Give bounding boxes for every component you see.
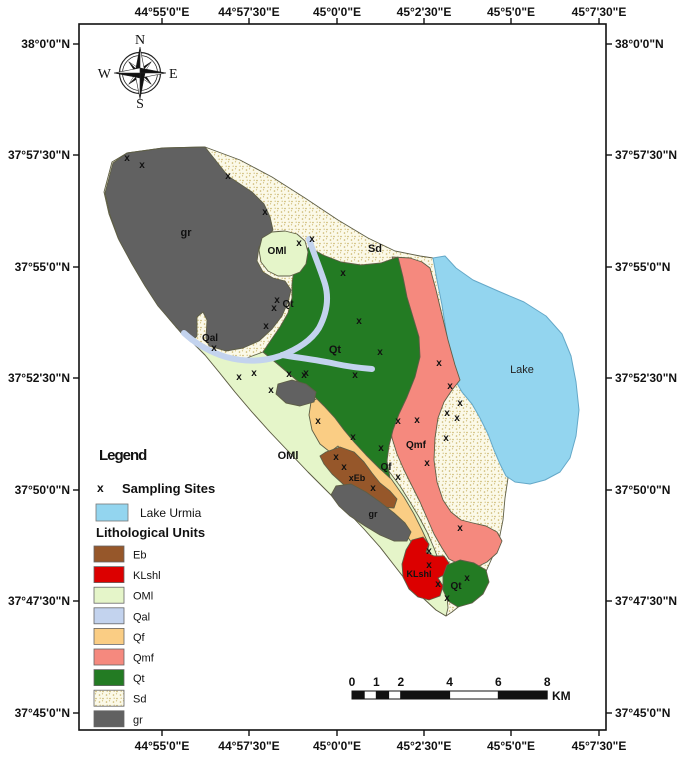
sampling-site-x: x	[225, 171, 231, 182]
scale-bar-segments	[352, 691, 547, 699]
lon-label-top: 44°55'0"E	[135, 5, 190, 19]
legend-label-gr: gr	[133, 714, 143, 726]
legend-sampling-label: Sampling Sites	[122, 481, 215, 496]
sampling-site-x: x	[395, 472, 401, 483]
lat-label-right: 37°57'30"N	[615, 148, 677, 162]
map-label-qt: Qt	[450, 581, 462, 592]
sampling-site-x: x	[286, 369, 292, 380]
legend-label-Qal: Qal	[133, 611, 150, 623]
lat-label-right: 37°52'30"N	[615, 371, 677, 385]
scale-bar-segment	[352, 691, 364, 699]
map-label-qt: Qt	[329, 344, 342, 356]
map-label-gr: gr	[369, 509, 378, 519]
lon-label-bottom: 45°5'0"E	[487, 739, 535, 753]
sampling-site-x: x	[435, 579, 441, 590]
legend-swatch-KLshl	[94, 567, 124, 583]
scale-bar-unit: KM	[552, 689, 571, 703]
sampling-site-x: x	[124, 153, 130, 164]
legend-label-Qf: Qf	[133, 632, 146, 644]
compass-e-label: E	[169, 67, 178, 82]
lon-label-top: 45°0'0"E	[313, 5, 361, 19]
sampling-site-x: x	[341, 462, 347, 473]
legend-swatch-Qt	[94, 670, 124, 686]
map-label-qf: Qf	[380, 462, 392, 473]
lat-label-left: 37°50'0"N	[15, 483, 70, 497]
map-label-oml: OMl	[268, 246, 287, 257]
scale-bar-segment	[401, 691, 450, 699]
sampling-site-x: x	[350, 432, 356, 443]
sampling-site-x: x	[251, 368, 257, 379]
scale-bar-number: 0	[349, 675, 356, 689]
geological-map-svg: grOMlSdQtQalQtOMlQmfQfxEbgrKLshlQtLake x…	[0, 0, 685, 756]
legend-label-Qmf: Qmf	[133, 653, 155, 665]
legend-label-Qt: Qt	[133, 673, 145, 685]
legend-swatch-gr	[94, 711, 124, 727]
legend-swatch-Qmf	[94, 649, 124, 665]
lon-label-top: 45°5'0"E	[487, 5, 535, 19]
legend-label-Sd: Sd	[133, 694, 146, 706]
sampling-site-x: x	[303, 368, 309, 379]
legend-swatch-OMl	[94, 587, 124, 603]
lon-label-bottom: 44°57'30"E	[218, 739, 279, 753]
scale-bar-number: 2	[397, 675, 404, 689]
sampling-site-x: x	[268, 385, 274, 396]
sampling-site-x: x	[436, 358, 442, 369]
scale-bar-segment	[376, 691, 388, 699]
sampling-site-x: x	[444, 593, 450, 604]
scale-bar-segment	[364, 691, 376, 699]
lon-label-bottom: 45°0'0"E	[313, 739, 361, 753]
sampling-site-x: x	[395, 416, 401, 427]
scale-bar-number: 8	[544, 675, 551, 689]
scale-bar-number: 1	[373, 675, 380, 689]
sampling-site-x: x	[271, 303, 277, 314]
legend-label-Eb: Eb	[133, 550, 146, 562]
sampling-site-x: x	[262, 207, 268, 218]
sampling-site-x: x	[370, 483, 376, 494]
lat-label-right: 38°0'0"N	[615, 37, 664, 51]
map-label-sd: Sd	[368, 243, 382, 255]
lat-label-right: 37°47'30"N	[615, 594, 677, 608]
legend-litho-header: Lithological Units	[96, 525, 205, 540]
lon-label-bottom: 45°7'30"E	[572, 739, 627, 753]
sampling-site-x: x	[309, 234, 315, 245]
map-label-qmf: Qmf	[406, 440, 427, 451]
sampling-site-x: x	[457, 523, 463, 534]
lat-label-right: 37°45'0"N	[615, 706, 670, 720]
legend-swatch-Qf	[94, 628, 124, 644]
scale-bar-segment	[498, 691, 547, 699]
lon-label-bottom: 44°55'0"E	[135, 739, 190, 753]
map-label-gr: gr	[181, 227, 193, 239]
legend-lake-label: Lake Urmia	[140, 506, 202, 520]
lat-label-right: 37°55'0"N	[615, 260, 670, 274]
legend-swatch-Qal	[94, 608, 124, 624]
scale-bar-number: 6	[495, 675, 502, 689]
sampling-site-x: x	[236, 372, 242, 383]
lat-label-right: 37°50'0"N	[615, 483, 670, 497]
sampling-site-x: x	[426, 546, 432, 557]
sampling-site-x: x	[444, 408, 450, 419]
scale-bar-segment	[450, 691, 499, 699]
lat-label-left: 37°52'30"N	[8, 371, 70, 385]
sampling-site-x: x	[315, 416, 321, 427]
legend-sampling-symbol: x	[97, 481, 104, 495]
compass-s-label: S	[136, 97, 144, 112]
legend-label-OMl: OMl	[133, 591, 153, 603]
sampling-site-x: x	[352, 370, 358, 381]
sampling-site-x: x	[414, 415, 420, 426]
legend-swatch-Eb	[94, 546, 124, 562]
scale-bar-number: 4	[446, 675, 453, 689]
lat-label-left: 37°47'30"N	[8, 594, 70, 608]
lon-label-top: 45°7'30"E	[572, 5, 627, 19]
sampling-site-x: x	[454, 413, 460, 424]
sampling-site-x: x	[464, 573, 470, 584]
lon-label-top: 45°2'30"E	[397, 5, 452, 19]
lat-label-left: 38°0'0"N	[21, 37, 70, 51]
map-label-lake: Lake	[510, 364, 534, 376]
sampling-site-x: x	[139, 160, 145, 171]
sampling-site-x: x	[443, 433, 449, 444]
sampling-site-x: x	[211, 343, 217, 354]
sampling-site-x: x	[447, 381, 453, 392]
map-figure: grOMlSdQtQalQtOMlQmfQfxEbgrKLshlQtLake x…	[0, 0, 685, 756]
compass-n-label: N	[135, 33, 145, 48]
map-label-qt: Qt	[282, 299, 294, 310]
legend-lake-swatch	[96, 504, 128, 521]
sampling-site-x: x	[378, 443, 384, 454]
legend-label-KLshl: KLshl	[133, 570, 161, 582]
map-label-oml: OMl	[278, 450, 299, 462]
scale-bar-segment	[389, 691, 401, 699]
lon-label-bottom: 45°2'30"E	[397, 739, 452, 753]
lat-label-left: 37°57'30"N	[8, 148, 70, 162]
sampling-site-x: x	[426, 560, 432, 571]
sampling-site-x: x	[377, 347, 383, 358]
map-label-xeb: xEb	[349, 473, 366, 483]
sampling-site-x: x	[457, 398, 463, 409]
sampling-site-x: x	[263, 321, 269, 332]
legend-swatch-Sd	[94, 690, 124, 706]
lon-label-top: 44°57'30"E	[218, 5, 279, 19]
lat-label-left: 37°45'0"N	[15, 706, 70, 720]
sampling-site-x: x	[340, 268, 346, 279]
lat-label-left: 37°55'0"N	[15, 260, 70, 274]
sampling-site-x: x	[424, 458, 430, 469]
compass-w-label: W	[98, 67, 112, 82]
sampling-site-x: x	[296, 238, 302, 249]
legend-title: Legend	[99, 447, 147, 464]
sampling-site-x: x	[356, 316, 362, 327]
sampling-site-x: x	[333, 452, 339, 463]
